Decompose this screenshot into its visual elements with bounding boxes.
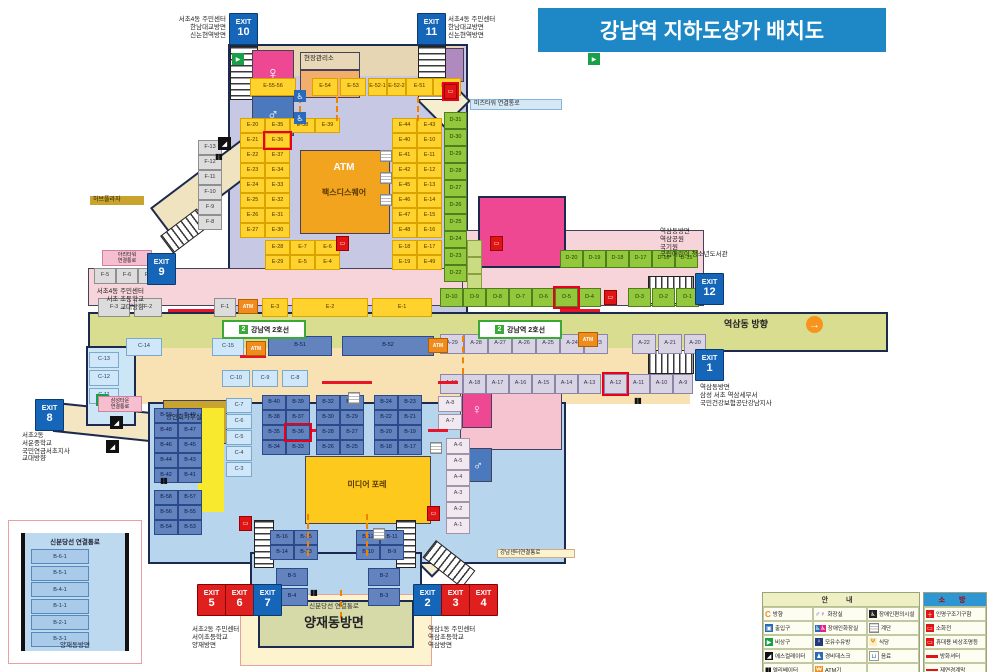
exit-number: 7 [264,597,270,609]
shop-cell-D-2: D-2 [652,288,675,307]
shop-cell-B-19: B-19 [398,425,422,440]
shop-cell-B-45: B-45 [178,438,202,453]
exit-word: EXIT [204,590,220,597]
shop-cell-E-25: E-25 [240,193,265,208]
smoke-curtain-line-2 [417,97,419,121]
shop-cell-B-36: B-36 [286,425,310,440]
shop-cell-E-29: E-29 [265,255,290,270]
shop-cell-E-36: E-36 [265,133,290,148]
exit-7: EXIT7 [253,584,282,616]
shop-cell-E-16: E-16 [417,223,442,238]
shop-cell-E-48: E-48 [392,223,417,238]
shop-cell-B-24: B-24 [374,395,398,410]
legend-item [867,663,919,672]
shop-cell-D-3: D-3 [628,288,651,307]
smoke-curtain-line-4 [307,514,309,556]
exit-number: 6 [236,597,242,609]
shop-cell-A-4: A-4 [446,470,470,486]
shop-cell-E-22: E-22 [240,148,265,163]
shop-cell-A-8: A-8 [438,396,462,412]
site-office-label: 현장관리소 [304,55,360,63]
shop-cell-E-2: E-2 [292,298,368,317]
inset-cell-B-4-1: B-4-1 [31,582,89,597]
exit-3: EXIT3 [441,584,470,616]
shop-cell-E-52-1: E-52-1 [368,78,387,96]
shop-cell-E-14: E-14 [417,193,442,208]
toi-legend-icon: ♂♀ [815,611,826,618]
legend-fire-items: ＋인명구조기구함▭소화전▭휴대용 비상조명등방화셔터제연경계막 [924,607,986,672]
miz-tower-passage-label: 미즈타워 연결통로 [470,99,562,110]
page-title: 강남역 지하도상가 배치도 [538,8,886,52]
exit-5: EXIT5 [197,584,226,616]
eme-legend-icon: ▶ [765,638,773,646]
shop-cell-E-21: E-21 [240,133,265,148]
yeoksam-direction-label: 역삼동 방향 [724,319,804,330]
smoke-curtain-line-5 [366,514,368,556]
shop-cell-A-16: A-16 [509,374,532,394]
nur-legend-icon: ♀ [815,638,823,646]
drink-legend-icon: ⊔ [869,651,879,661]
merchant-office-label: 상인회사무실 [166,414,224,422]
exit-2: EXIT2 [413,584,442,616]
shop-cell-E-30: E-30 [265,223,290,238]
exit-8: EXIT8 [35,399,64,431]
shop-cell-A-14: A-14 [555,374,578,394]
legend-item-모유수유방: ♀모유수유방 [813,635,867,649]
exit-6: EXIT6 [225,584,254,616]
fire-hydrant-icon: ▭ [604,290,617,305]
smoke-curtain-line-3 [462,336,464,374]
shop-cell-B-14: B-14 [270,545,294,560]
shop-cell-B-38: B-38 [262,410,286,425]
legend-item-label: 장애인화장실 [828,624,858,632]
legend-item-ATM기: ₩ATM기 [813,663,867,672]
shop-cell-D-10: D-10 [440,288,463,307]
shop-cell-B-43: B-43 [178,453,202,468]
legend-item-label: 화장실 [828,610,843,618]
shutter-legend-icon [926,655,938,658]
legend-item-label: 모유수유방 [825,638,850,646]
exit-number: 1 [706,362,712,374]
shop-cell-E-10: E-10 [417,133,442,148]
shop-cell-B-40: B-40 [262,395,286,410]
legend-item-음료: ⊔음료 [867,649,919,663]
dir-legend-icon: C [765,610,771,619]
emergency-exit-icon: ▶ [232,53,244,65]
legend-item-label: 엘리베이터 [773,666,798,672]
shop-cell-E-17: E-17 [417,240,442,255]
exit-number: 8 [46,412,52,424]
shop-cell-F-8: F-8 [198,215,222,230]
shop-cell-A-2: A-2 [446,502,470,518]
atm-icon: ATM [578,332,598,347]
shop-cell-B-54: B-54 [154,520,178,535]
shop-cell-D-9: D-9 [463,288,486,307]
exit-12: EXIT12 [695,273,724,305]
shop-cell-C-8: C-8 [282,370,308,387]
line2-number-icon: 2 [239,325,248,334]
shop-cell-B-10: B-10 [356,545,380,560]
shop-cell-A-9: A-9 [673,374,693,394]
shop-cell-B-20: B-20 [374,425,398,440]
shop-cell-D-28: D-28 [444,163,467,180]
exit-word: EXIT [232,590,248,597]
shop-cell-D-22: D-22 [444,265,467,282]
fire-hydrant-icon: ▭ [427,506,440,521]
shop-cell-B-2: B-2 [368,568,400,586]
shop-cell-B-9: B-9 [380,545,404,560]
shop-cell-A-11: A-11 [627,374,650,394]
legend-item-엘리베이터: ▮▮엘리베이터 [763,663,813,672]
shop-cell-E-15: E-15 [417,208,442,223]
shop-cell [467,257,482,274]
shop-cell-A-7: A-7 [438,414,462,430]
fire-shutter-line-6 [428,429,448,432]
fire-hydrant-icon: ▭ [336,236,349,251]
fire-shutter-line-4 [438,381,458,384]
exit-word: EXIT [476,590,492,597]
atm-hall-label: ATM [302,162,386,174]
exit10-desc: 서초4동 주민센터 한남대교방면 신논현역방면 [120,16,226,39]
legend-item-장애인화장실: ♿♿장애인화장실 [813,621,867,635]
shop-cell-B-37: B-37 [286,410,310,425]
shop-cell-B-51: B-51 [268,336,332,356]
legend-item-소화전: ▭소화전 [924,621,986,635]
shop-cell-B-22: B-22 [374,410,398,425]
legend-item-label: 비상구 [775,638,790,646]
food-legend-icon: Ψ [869,638,877,646]
line2-number-icon: 2 [495,325,504,334]
shop-cell-B-25: B-25 [340,440,364,455]
shop-cell-B-41: B-41 [178,468,202,483]
legend-item-label: ATM기 [825,666,841,672]
inset-cell-B-1-1: B-1-1 [31,599,89,614]
shop-cell-C-15: C-15 [212,338,244,356]
shop-cell-D-4: D-4 [578,288,601,307]
legend-item-label: 휴대용 비상조명등 [936,638,978,646]
shop-cell-E-55-56: E-55-56 [250,78,296,96]
line2-station-badge-1: 2강남역 2호선 [478,320,562,339]
shop-cell-C-3: C-3 [226,462,252,477]
exit8-desc: 서초2동 서운중학교 국민연금서초지사 교대방향 [22,432,112,463]
shop-cell-B-28: B-28 [316,425,340,440]
shop-cell-E-23: E-23 [240,163,265,178]
shop-cell [467,240,482,257]
fire-hydrant-icon: ▭ [490,236,503,251]
shop-cell-E-20: E-20 [240,118,265,133]
fire-shutter-line-3 [322,381,372,384]
legend-item-방화셔터: 방화셔터 [924,649,986,663]
shop-cell-A-19: A-19 [440,374,463,394]
shop-cell-C-10: C-10 [222,370,250,387]
shop-cell-C-5: C-5 [226,430,252,445]
shop-cell-E-47: E-47 [392,208,417,223]
shop-cell-A-15: A-15 [532,374,555,394]
sinbundang-inset: 신분당선 연결통로 B-6-1B-5-1B-4-1B-1-1B-2-1B-3-1… [8,520,142,664]
exit9-desc: 서초4동 주민센터 서초 초등학교 교대방향 [58,288,144,311]
exit-number: 2 [424,597,430,609]
shop-cell-F-9: F-9 [198,200,222,215]
stairs-icon [348,392,360,404]
shop-cell-D-5: D-5 [555,288,578,307]
curtain-legend-icon [926,669,938,671]
fire-shutter-line-1 [560,309,600,312]
shop-cell-B-58: B-58 [154,490,178,505]
exit-word: EXIT [702,279,718,286]
inset-inner: 신분당선 연결통로 B-6-1B-5-1B-4-1B-1-1B-2-1B-3-1… [21,533,129,651]
legend-item-에스컬레이터: ◢에스컬레이터 [763,649,813,663]
shop-cell-E-34: E-34 [265,163,290,178]
shop-cell-C-14: C-14 [126,338,162,356]
elevator-icon: ▮▮ [211,150,226,162]
shop-cell-C-6: C-6 [226,414,252,429]
shop-cell-B-39: B-39 [286,395,310,410]
exit-number: 3 [452,597,458,609]
shop-cell-C-4: C-4 [226,446,252,461]
shop-cell-E-37: E-37 [265,148,290,163]
accb-legend-icon: ♿ [869,610,877,618]
shop-cell-E-45: E-45 [392,178,417,193]
shop-cell-E-27: E-27 [240,223,265,238]
exit-number: 4 [480,597,486,609]
shop-cell-A-22: A-22 [632,334,656,354]
gua-legend-icon: ♟ [815,652,823,660]
wheelchair-icon: ♿ [294,90,306,102]
shop-cell-B-46: B-46 [154,438,178,453]
legend-item-label: 소화전 [936,624,951,632]
legend-item-label: 방향 [773,610,783,618]
legend-fire-title: 소 방 [924,593,986,607]
atm-legend-icon: ₩ [815,666,823,672]
exit-9: EXIT9 [147,253,176,285]
legend-info-table: 안 내 C방향♂♀화장실♿장애인편의시설▣출입구♿♿장애인화장실계단▶비상구♀모… [762,592,920,672]
atm-icon: ATM [246,341,266,356]
shop-cell-B-48: B-48 [154,423,178,438]
shop-cell-A-5: A-5 [446,454,470,470]
inset-title: 신분당선 연결통로 [21,536,129,546]
shop-cell-B-56: B-56 [154,505,178,520]
stq-legend-icon [869,623,879,633]
shop-cell-D-17: D-17 [629,250,652,268]
elevator-icon: ▮▮ [630,394,645,406]
shop-cell-D-8: D-8 [486,288,509,307]
zone-8 [478,196,566,268]
acc2-legend-icon: ♿♿ [815,625,826,632]
shop-cell-E-33: E-33 [265,178,290,193]
legend-item-휴대용 비상조명등: ▭휴대용 비상조명등 [924,635,986,649]
legend-info-items: C방향♂♀화장실♿장애인편의시설▣출입구♿♿장애인화장실계단▶비상구♀모유수유방… [763,607,919,672]
legend: 안 내 C방향♂♀화장실♿장애인편의시설▣출입구♿♿장애인화장실계단▶비상구♀모… [762,592,987,672]
escalator-icon: ◢ [110,416,123,429]
atm-icon: ATM [238,299,258,314]
shop-cell-E-43: E-43 [417,118,442,133]
legend-item-label: 제연경계막 [940,666,965,672]
shop-cell-E-46: E-46 [392,193,417,208]
esc-legend-icon: ◢ [765,652,773,660]
zone-23 [305,456,431,524]
legend-item-비상구: ▶비상구 [763,635,813,649]
exit234-desc: 역삼1동 주민센터 역삼초등학교 역삼방면 [428,626,520,649]
shop-cell-E-32: E-32 [265,193,290,208]
shop-cell-D-24: D-24 [444,231,467,248]
inset-footer: 양재동방면 [21,639,129,649]
shop-cell-E-12: E-12 [417,163,442,178]
legend-item-인명구조기구함: ＋인명구조기구함 [924,607,986,621]
map-canvas: 강남역 지하도상가 배치도 ♀♂♀♂E-55-56E-54E-53E-52-1E… [0,0,989,672]
ent-legend-icon: ▣ [765,624,773,632]
shop-cell-E-54: E-54 [312,78,338,96]
exit567-desc: 서초2동 주민센터 서이초등학교 양재방면 [192,626,284,649]
elevator-icon: ▮▮ [306,586,321,598]
exit-number: 9 [158,266,164,278]
line2-station-label: 강남역 2호선 [507,325,545,335]
stairs-icon [380,150,392,162]
stairs-icon [430,442,442,454]
fire-hydrant-icon: ▭ [444,84,457,99]
exit12-desc: 역삼동방면 역삼공원 국기원 국립어린이 청소년도서관 [660,228,810,259]
inset-wall-left [21,533,25,651]
shop-cell-D-19: D-19 [583,250,606,268]
exit-word: EXIT [154,259,170,266]
shop-cell-F-1: F-1 [214,298,236,317]
shop-cell-E-53: E-53 [340,78,366,96]
legend-item-식당: Ψ식당 [867,635,919,649]
shop-cell-C-7: C-7 [226,398,252,413]
exit-number: 5 [208,597,214,609]
legend-item-label: 음료 [881,652,891,660]
stairs-icon [373,528,385,540]
lamp-legend-icon: ▭ [926,638,934,646]
exit1-desc: 역삼동방면 삼성 서초 역삼세무서 국민건강보험공단강남지사 [700,384,860,407]
samsung-town-passage-label: 삼성타운 연결통로 [98,396,142,412]
inset-cell-B-5-1: B-5-1 [31,566,89,581]
shop-cell-E-42: E-42 [392,163,417,178]
exit-word: EXIT [420,590,436,597]
shop-cell-B-29: B-29 [340,410,364,425]
shop-cell-A-12: A-12 [604,374,627,394]
legend-fire-table: 소 방 ＋인명구조기구함▭소화전▭휴대용 비상조명등방화셔터제연경계막 [923,592,987,672]
shop-cell-B-15: B-15 [294,530,318,545]
shop-cell-D-27: D-27 [444,180,467,197]
ari-tower-passage-label: 아리타워 연결통로 [102,250,152,266]
shop-cell-E-4: E-4 [315,255,340,270]
direction-arrow-icon: → [806,316,823,333]
shop-cell-A-18: A-18 [463,374,486,394]
shop-cell-E-24: E-24 [240,178,265,193]
smoke-curtain-line-1 [336,97,338,121]
shop-cell-B-17: B-17 [398,440,422,455]
legend-item-계단: 계단 [867,621,919,635]
shop-cell-B-27: B-27 [340,425,364,440]
exit-word: EXIT [448,590,464,597]
inset-cell-B-2-1: B-2-1 [31,615,89,630]
legend-item-label: 방화셔터 [940,652,960,660]
line2-station-badge-0: 2강남역 2호선 [222,320,306,339]
shop-cell-B-44: B-44 [154,453,178,468]
inset-cell-B-6-1: B-6-1 [31,549,89,564]
shop-cell-A-1: A-1 [446,518,470,534]
shop-cell-E-18: E-18 [392,240,417,255]
escalator-icon: ◢ [218,137,231,150]
shop-cell-B-32: B-32 [316,395,340,410]
shop-cell-D-6: D-6 [532,288,555,307]
emergency-exit-icon: ▶ [588,53,600,65]
legend-item-label: 경비데스크 [825,652,850,660]
shop-cell-B-53: B-53 [178,520,202,535]
legend-item-제연경계막: 제연경계막 [924,663,986,672]
shop-cell-E-5: E-5 [290,255,315,270]
shop-cell-A-3: A-3 [446,486,470,502]
shop-cell-D-25: D-25 [444,214,467,231]
shop-cell-B-21: B-21 [398,410,422,425]
exit-10: EXIT10 [229,13,258,45]
shop-cell-A-10: A-10 [650,374,673,394]
shop-cell-E-26: E-26 [240,208,265,223]
shop-cell-E-1: E-1 [372,298,432,317]
shop-cell-B-26: B-26 [316,440,340,455]
shop-cell-D-23: D-23 [444,248,467,265]
shop-cell-C-9: C-9 [252,370,278,387]
restroom-women-icon: ♀ [462,390,492,428]
shop-cell-E-19: E-19 [392,255,417,270]
exit-number: 10 [237,26,249,38]
exit-word: EXIT [424,19,440,26]
exit-number: 12 [703,286,715,298]
hyd-legend-icon: ▭ [926,624,934,632]
fire-hydrant-icon: ▭ [239,516,252,531]
shop-cell-B-13: B-13 [294,545,318,560]
shop-cell-A-21: A-21 [658,334,682,354]
inset-wall-right [125,533,129,651]
legend-item-label: 인명구조기구함 [936,610,971,618]
shop-cell-B-52: B-52 [342,336,434,356]
shop-cell-D-31: D-31 [444,112,467,129]
shop-cell-E-3: E-3 [262,298,288,317]
shop-cell-F-10: F-10 [198,185,222,200]
shop-cell-A-17: A-17 [486,374,509,394]
media-fore-label: 미디어 포레 [307,480,427,490]
shop-cell-B-16: B-16 [270,530,294,545]
shop-cell-D-29: D-29 [444,146,467,163]
exit-number: 11 [426,26,438,38]
shop-cell-E-51: E-51 [406,78,433,96]
shop-cell-E-13: E-13 [417,178,442,193]
shop-cell-B-33: B-33 [286,440,310,455]
shop-cell-A-6: A-6 [446,438,470,454]
atm-icon: ATM [428,338,448,353]
legend-item-label: 계단 [881,624,891,632]
fire-shutter-line-0 [168,309,214,312]
shop-cell-F-11: F-11 [198,170,222,185]
shop-cell-E-52-2: E-52-2 [387,78,406,96]
fax-square-label: 팩스디스퀘어 [302,188,386,198]
rescue-legend-icon: ＋ [926,610,934,618]
herb-plaza-label: 허브플라자 [90,196,144,205]
shop-cell-E-44: E-44 [392,118,417,133]
shop-cell-F-6: F-6 [116,268,138,284]
legend-info-title: 안 내 [763,593,919,607]
shop-cell-C-12: C-12 [89,370,119,386]
shop-cell-B-55: B-55 [178,505,202,520]
sinbundang-passage-label: 신분당선 연결통로 [260,603,408,611]
shop-cell-B-34: B-34 [262,440,286,455]
shop-cell-E-40: E-40 [392,133,417,148]
shop-cell-B-47: B-47 [178,423,202,438]
wheelchair-icon: ♿ [294,112,306,124]
exit-word: EXIT [702,355,718,362]
shop-cell-D-30: D-30 [444,129,467,146]
exit-4: EXIT4 [469,584,498,616]
